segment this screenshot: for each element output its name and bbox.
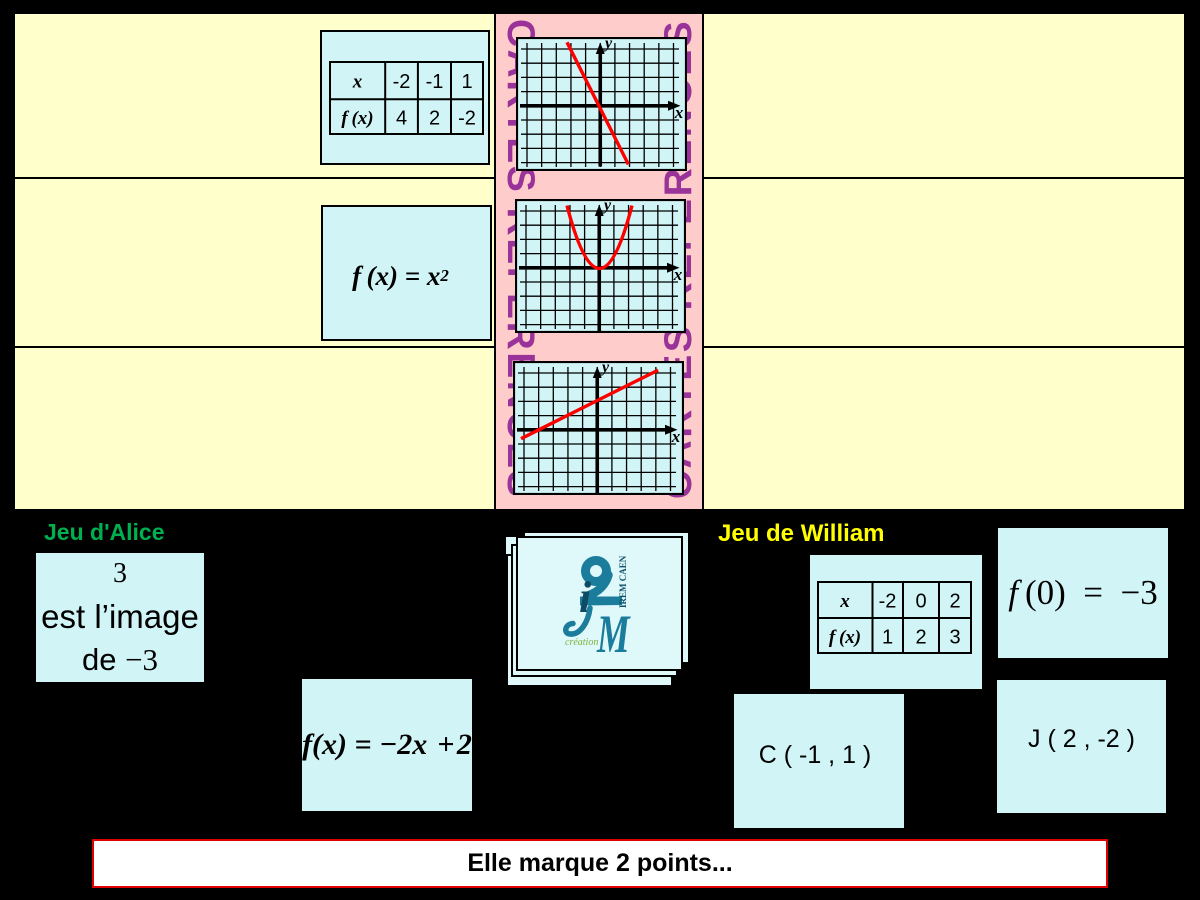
svg-text:-1: -1 — [426, 71, 444, 93]
svg-text:3: 3 — [949, 627, 960, 649]
svg-text:4: 4 — [396, 108, 407, 130]
svg-text:création: création — [565, 637, 598, 648]
svg-text:M: M — [596, 604, 631, 664]
svg-text:f (x): f (x) — [829, 627, 861, 648]
svg-text:2: 2 — [949, 591, 960, 613]
svg-text:1: 1 — [882, 627, 893, 649]
svg-text:-2: -2 — [879, 591, 897, 613]
svg-text:x: x — [671, 427, 681, 446]
svg-text:-2: -2 — [393, 71, 411, 93]
svg-text:-2: -2 — [458, 108, 476, 130]
svg-text:2: 2 — [429, 108, 440, 130]
svg-text:y: y — [603, 37, 613, 52]
svg-text:x: x — [352, 72, 363, 93]
svg-text:x: x — [674, 103, 684, 122]
svg-text:0: 0 — [915, 591, 926, 613]
svg-text:1: 1 — [461, 71, 472, 93]
svg-text:y: y — [602, 199, 612, 214]
svg-text:x: x — [673, 265, 683, 284]
svg-text:2: 2 — [915, 627, 926, 649]
svg-text:f (x): f (x) — [341, 108, 373, 129]
svg-text:IREM CAEN: IREM CAEN — [618, 555, 628, 608]
svg-text:x: x — [839, 591, 850, 612]
svg-text:y: y — [600, 361, 610, 376]
